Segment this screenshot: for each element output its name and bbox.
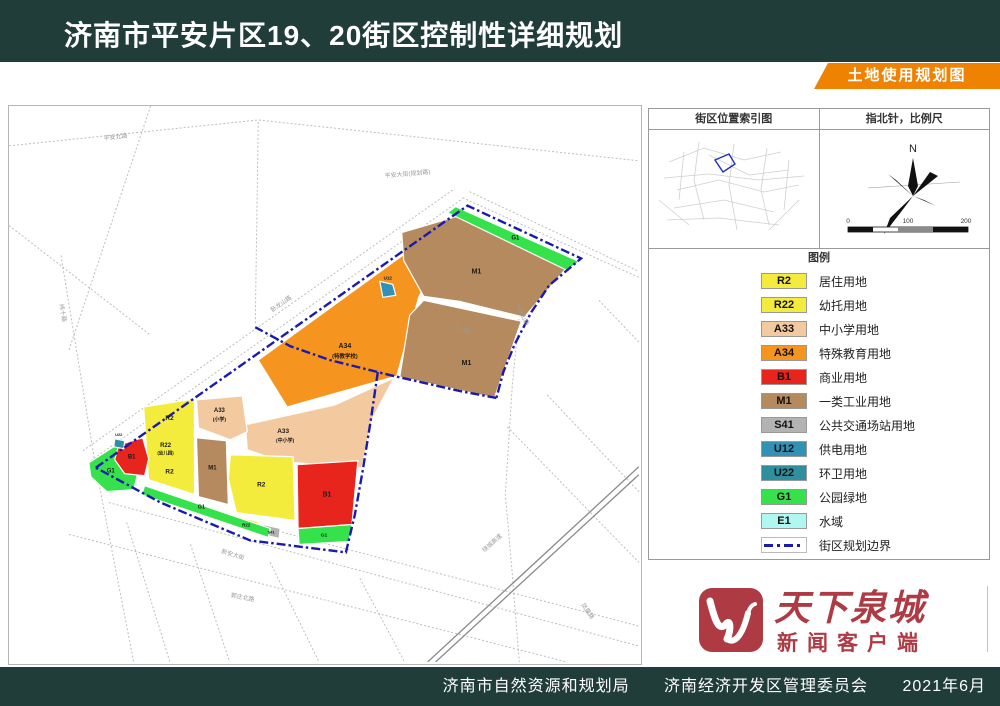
road [436, 475, 639, 662]
footer-bar: 济南市自然资源和规划局 济南经济开发区管理委员会 2021年6月 [0, 667, 1000, 706]
road [190, 544, 230, 662]
road-label: 郭庄北路 [230, 591, 255, 603]
legend-row: A33中小学用地 [649, 317, 989, 341]
road-label: 卧龙山路 [269, 294, 293, 314]
legend-label: 一类工业用地 [819, 393, 891, 410]
index-map-title: 街区位置索引图 [649, 109, 819, 129]
logo-title: 天下泉城 [774, 579, 926, 631]
scale-tick-200: 200 [961, 218, 972, 225]
news-app-logo: 天下泉城 新闻客户端 [698, 583, 988, 661]
parcel-label: M1 [472, 268, 482, 275]
legend-list: R2居住用地R22幼托用地A33中小学用地A34特殊教育用地B1商业用地M1一类… [649, 267, 989, 557]
legend-swatch: A33 [761, 321, 807, 337]
parcel-label: A34 [339, 343, 352, 350]
parcel-label: G1 [107, 469, 116, 475]
road [507, 427, 639, 563]
footer-agency-left: 济南市自然资源和规划局 [443, 678, 630, 695]
legend-swatch: R22 [761, 297, 807, 313]
road [69, 106, 151, 350]
legend-label: 环卫用地 [819, 465, 867, 482]
parcel-label: A33 [214, 408, 226, 414]
page-title: 济南市平安片区19、20街区控制性详细规划 [64, 14, 623, 54]
parcel-label: G1 [321, 532, 328, 538]
legend-swatch: U22 [761, 465, 807, 481]
legend-label: 水域 [819, 513, 843, 530]
legend-panel: 街区位置索引图 指北针，比例尺 N [648, 108, 990, 560]
legend-label: 幼托用地 [819, 297, 867, 314]
compass-cell: N 0 100 [819, 130, 990, 248]
legend-swatch: E1 [761, 513, 807, 529]
parcel-label: (小学) [213, 416, 227, 423]
legend-row: U22环卫用地 [649, 461, 989, 485]
parcel-label: M1 [462, 360, 472, 367]
parcel-label: U22 [115, 432, 123, 437]
north-label: N [909, 143, 917, 155]
road [127, 523, 171, 662]
road-label: 凤凰路 [579, 601, 596, 620]
parcel-label: (幼儿园) [157, 450, 174, 457]
parcel-label: B1 [323, 492, 332, 499]
legend-row: G1公园绿地 [649, 485, 989, 509]
parcel-M1 [400, 300, 522, 398]
road-label: 绕城高速 [480, 532, 503, 554]
parcel-U22 [114, 439, 125, 449]
scale-tick-0: 0 [846, 218, 850, 225]
legend-swatch: S41 [761, 417, 807, 433]
legend-row: S41公共交通场站用地 [649, 413, 989, 437]
parcel-label: M1 [208, 466, 217, 472]
plan-type-label: 土地使用规划图 [814, 63, 1000, 89]
legend-swatch: A34 [761, 345, 807, 361]
legend-label: 特殊教育用地 [819, 345, 891, 362]
legend-label: 商业用地 [819, 369, 867, 386]
legend-row: U12供电用地 [649, 437, 989, 461]
parcel-label: (中小学) [276, 437, 295, 444]
legend-swatch: G1 [761, 489, 807, 505]
logo-subtitle: 新闻客户端 [777, 627, 927, 657]
legend-row: E1水域 [649, 509, 989, 533]
legend-swatch: B1 [761, 369, 807, 385]
legend-title: 图例 [649, 249, 989, 267]
road-label: 新安大街 [220, 547, 245, 562]
road-label: 平安北路 [103, 131, 128, 142]
parcel-label: R2 [165, 469, 174, 476]
road [547, 395, 639, 492]
road [270, 562, 320, 662]
legend-boundary-swatch [761, 537, 807, 553]
road-label: 纬十路 [57, 303, 68, 322]
scale-tick-100: 100 [903, 218, 914, 225]
parcel-label: R22 [242, 522, 251, 527]
parcel-label: S41 [268, 529, 276, 534]
footer-agency-right: 济南经济开发区管理委员会 [664, 678, 868, 695]
legend-label: 街区规划边界 [819, 537, 891, 554]
logo-divider [987, 586, 988, 652]
legend-swatch: U12 [761, 441, 807, 457]
road [360, 578, 406, 662]
title-bar: 济南市平安片区19、20街区控制性详细规划 [0, 0, 1000, 62]
parcel-label: G1 [511, 236, 520, 242]
parcel-label: A33 [277, 428, 289, 435]
road [428, 467, 639, 662]
parcel-label: G1 [198, 505, 205, 511]
legend-label: 供电用地 [819, 441, 867, 458]
legend-row: M1一类工业用地 [649, 389, 989, 413]
legend-row: A34特殊教育用地 [649, 341, 989, 365]
index-map-cell [649, 130, 819, 248]
legend-row: R2居住用地 [649, 269, 989, 293]
road [69, 534, 567, 662]
legend-label: 公共交通场站用地 [819, 417, 915, 434]
road-label: 平安大街(规划路) [384, 168, 430, 180]
road [109, 503, 639, 646]
legend-label: 公园绿地 [819, 489, 867, 506]
parcel-label: R22 [160, 443, 172, 449]
parcel-label: R2 [257, 482, 266, 489]
compass-and-scale: N 0 100 [820, 130, 990, 247]
parcel-label: B1 [128, 455, 136, 461]
index-map-sketch [649, 130, 819, 247]
compass-title: 指北针，比例尺 [819, 109, 990, 129]
parcel-label: U12 [384, 275, 393, 280]
legend-swatch: R2 [761, 273, 807, 289]
road [599, 300, 639, 342]
logo-icon [698, 587, 764, 653]
planning-map-box: M1M1G1A34(特教学校)U12A33(中小学)A33(小学)R2R22(幼… [8, 105, 642, 665]
legend-row: 街区规划边界 [649, 533, 989, 557]
legend-row: R22幼托用地 [649, 293, 989, 317]
legend-label: 居住用地 [819, 273, 867, 290]
north-arrow-icon [868, 158, 960, 234]
legend-row: B1商业用地 [649, 365, 989, 389]
legend-label: 中小学用地 [819, 321, 879, 338]
parcel-label: R2 [165, 415, 174, 422]
plan-type-badge: 土地使用规划图 [814, 63, 1000, 89]
panel-headers: 街区位置索引图 指北针，比例尺 [649, 109, 989, 130]
page: 济南市平安片区19、20街区控制性详细规划 土地使用规划图 M1M1G1A34(… [0, 0, 1000, 706]
scale-bar: 0 100 200 [846, 218, 972, 232]
legend-swatch: M1 [761, 393, 807, 409]
road [255, 122, 258, 325]
parcel-label: (特教学校) [332, 352, 358, 360]
planning-map: M1M1G1A34(特教学校)U12A33(中小学)A33(小学)R2R22(幼… [9, 106, 639, 662]
footer-date: 2021年6月 [903, 678, 987, 695]
